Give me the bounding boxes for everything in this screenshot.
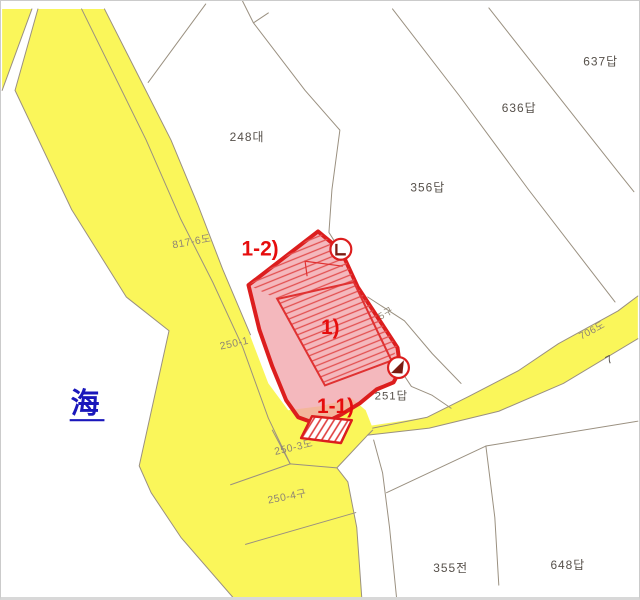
boundary-line <box>148 4 206 82</box>
survey-marker-bottom <box>388 357 409 378</box>
parcel-label-648: 648답 <box>550 558 585 572</box>
sea-label: 海 <box>71 388 100 420</box>
boundary-line <box>393 9 616 302</box>
parcel-label-636: 636답 <box>502 101 537 115</box>
mark-label-1-2: 1-2) <box>242 237 279 260</box>
boundary-line <box>387 421 638 493</box>
boundary-line <box>253 13 268 23</box>
parcel-label-356: 356답 <box>410 181 445 195</box>
parcel-label-355: 355전 <box>433 561 468 575</box>
mark-label-1-1: 1-1) <box>317 395 354 418</box>
parcel-label-251: 251답 <box>375 389 409 402</box>
parcel-label-637: 637답 <box>583 55 618 69</box>
boundary-line <box>374 440 397 597</box>
survey-marker-top <box>330 239 351 260</box>
parcel-label-7-partial: 7 <box>604 353 616 367</box>
cadastral-map: 248대 356답 636답 637답 251답 355전 648답 5구 7 … <box>0 0 640 600</box>
map-svg: 248대 356답 636답 637답 251답 355전 648답 5구 7 … <box>1 1 639 597</box>
boundary-line <box>486 446 499 585</box>
mark-label-1: 1) <box>321 316 340 339</box>
survey-marker-circle <box>330 239 351 260</box>
boundary-line <box>489 8 634 192</box>
parcel-label-248: 248대 <box>230 130 265 144</box>
